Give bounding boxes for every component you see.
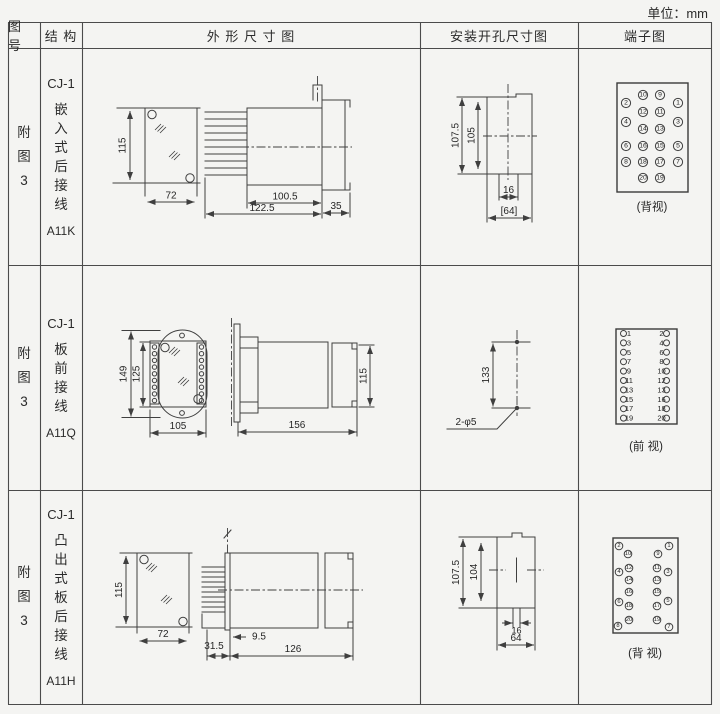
row1-mounting-drawing: 107.5 105 16 [64] xyxy=(451,84,538,222)
terminal-pin-number: 14 xyxy=(626,577,633,583)
screw-terminal-circle xyxy=(152,365,156,369)
terminal-pin-number: 8 xyxy=(616,623,619,629)
screw-terminal-circle xyxy=(152,385,156,389)
figure-no-row3: 附图3 xyxy=(8,490,40,704)
table-grid xyxy=(8,23,712,705)
screw-terminal-circle xyxy=(152,372,156,376)
col-header-outline: 外 形 尺 寸 图 xyxy=(82,22,420,48)
terminal-pin-number: 2 xyxy=(617,543,620,549)
terminal-pin-number: 11 xyxy=(625,376,633,385)
terminal-pin-number: 17 xyxy=(625,404,633,413)
structure-row3: CJ-1 凸出式板后接线 A11H xyxy=(40,490,82,704)
terminal-pin-number: 1 xyxy=(667,543,670,549)
terminal-pin-number: 14 xyxy=(639,126,647,133)
terminal-pin-number: 15 xyxy=(625,395,633,404)
dim-label: 115 xyxy=(118,137,129,153)
screw-terminal-circle xyxy=(152,398,156,402)
row1-terminal-diagram: (背视) 1092112114314136161558181772019 xyxy=(617,83,688,214)
terminal-pin-number: 10 xyxy=(657,367,665,376)
terminal-pin-number: 5 xyxy=(676,143,680,150)
unit-label: 单位：mm xyxy=(588,3,708,22)
terminal-pin-number: 19 xyxy=(656,175,664,182)
terminal-view-label: (背 视) xyxy=(628,646,662,660)
screw-terminal-circle xyxy=(152,378,156,382)
terminal-pin-number: 2 xyxy=(624,100,628,107)
terminal-pin-number: 20 xyxy=(626,617,632,623)
terminal-pin-number: 11 xyxy=(654,565,660,571)
terminal-pin-number: 13 xyxy=(656,126,664,133)
terminal-pin-number: 16 xyxy=(657,395,665,404)
row1-outline-drawing: 115 72 100.5 122.5 35 xyxy=(113,76,352,218)
terminal-pin-number: 19 xyxy=(654,617,660,623)
screw-terminal-circle xyxy=(152,358,156,362)
dim-label: 105 xyxy=(170,421,187,432)
terminal-view-label: (背视) xyxy=(637,200,668,214)
dim-label: 115 xyxy=(359,368,370,384)
dim-label: [64] xyxy=(501,206,518,217)
terminal-pin-number: 16 xyxy=(639,143,647,150)
terminal-pin-circle xyxy=(664,340,670,346)
terminal-pin-number: 17 xyxy=(656,159,664,166)
terminal-pin-circle xyxy=(664,359,670,365)
row2-mounting-drawing: 133 2-φ5 xyxy=(447,330,530,429)
row3-terminal-diagram: (背 视) 2110912114314131615651817201987 xyxy=(613,538,678,660)
terminal-pin-number: 11 xyxy=(656,109,663,116)
terminal-pin-number: 12 xyxy=(657,376,665,385)
terminal-pin-number: 9 xyxy=(658,92,662,99)
terminal-pin-number: 3 xyxy=(666,569,669,575)
terminal-pin-number: 6 xyxy=(624,143,628,150)
terminal-pin-number: 3 xyxy=(676,119,680,126)
dim-label: 156 xyxy=(289,420,306,431)
terminal-pin-number: 18 xyxy=(639,159,647,166)
terminal-pin-number: 16 xyxy=(626,589,632,595)
screw-terminal-circle xyxy=(199,378,203,382)
structure-label: 凸出式板后接线 xyxy=(53,531,70,664)
model-label: CJ-1 xyxy=(47,76,74,91)
terminal-pin-number: 12 xyxy=(639,109,647,116)
terminal-pin-number: 13 xyxy=(654,577,660,583)
terminal-pin-number: 12 xyxy=(626,565,632,571)
terminal-pin-number: 5 xyxy=(627,348,631,357)
terminal-pin-circle xyxy=(621,340,627,346)
terminal-pin-number: 9 xyxy=(656,551,659,557)
terminal-pin-number: 18 xyxy=(657,404,665,413)
screw-terminal-circle xyxy=(199,352,203,356)
terminal-pin-number: 7 xyxy=(627,357,631,366)
terminal-pin-number: 19 xyxy=(625,414,633,423)
structure-label: 嵌入式后接线 xyxy=(53,100,70,214)
col-header-terminal: 端子图 xyxy=(578,22,712,48)
terminal-pin-number: 15 xyxy=(654,589,660,595)
terminal-pin-circle xyxy=(621,331,627,337)
screw-terminal-circle xyxy=(152,345,156,349)
dim-label: 100.5 xyxy=(272,192,297,203)
dim-label: 107.5 xyxy=(451,560,462,585)
structure-row1: CJ-1 嵌入式后接线 A11K xyxy=(40,48,82,265)
terminal-pin-circle xyxy=(664,331,670,337)
terminal-pin-number: 20 xyxy=(639,175,647,182)
dim-label: 104 xyxy=(469,563,480,580)
screw-terminal-circle xyxy=(199,372,203,376)
row2-outline-drawing: 149 125 105 115 156 xyxy=(119,318,375,437)
dim-label: 126 xyxy=(285,644,302,655)
row3-mounting-drawing: 107.5 104 16 64 xyxy=(451,533,544,650)
terminal-pin-number: 10 xyxy=(625,551,631,557)
dim-label: 133 xyxy=(481,366,492,383)
terminal-pin-number: 7 xyxy=(676,159,680,166)
dim-label: 72 xyxy=(165,191,177,202)
terminal-pin-number: 8 xyxy=(624,159,628,166)
terminal-view-label: (前 视) xyxy=(629,439,663,453)
hole-note-label: 2-φ5 xyxy=(456,417,477,428)
dim-label: 149 xyxy=(119,365,130,382)
dim-label: 9.5 xyxy=(252,632,266,643)
col-header-mounting: 安装开孔尺寸图 xyxy=(420,22,578,48)
terminal-pin-circle xyxy=(664,349,670,355)
dim-label: 122.5 xyxy=(249,203,274,214)
structure-label: 板前接线 xyxy=(53,340,70,416)
terminal-pin-number: 5 xyxy=(666,598,669,604)
dim-label: 72 xyxy=(157,629,169,640)
terminal-pin-number: 6 xyxy=(617,599,620,605)
dim-label: 105 xyxy=(467,127,478,144)
screw-terminal-circle xyxy=(199,358,203,362)
terminal-pin-number: 1 xyxy=(676,100,680,107)
row3-outline-drawing: 115 72 9.5 31.5 126 xyxy=(114,528,363,660)
screw-terminal-circle xyxy=(152,352,156,356)
model-label: CJ-1 xyxy=(47,507,74,522)
terminal-pin-number: 8 xyxy=(659,357,663,366)
terminal-pin-circle xyxy=(621,349,627,355)
dim-label: 115 xyxy=(114,582,125,598)
screw-terminal-circle xyxy=(199,385,203,389)
col-header-structure: 结 构 xyxy=(40,22,82,48)
screw-terminal-circle xyxy=(199,392,203,396)
terminal-pin-number: 1 xyxy=(627,329,631,338)
terminal-pin-number: 4 xyxy=(624,119,628,126)
terminal-pin-number: 13 xyxy=(625,385,633,394)
figure-no-row1: 附图3 xyxy=(8,48,40,265)
terminal-pin-number: 7 xyxy=(667,624,670,630)
terminal-pin-number: 9 xyxy=(627,367,631,376)
dim-label: 64 xyxy=(510,633,522,644)
screw-terminal-circle xyxy=(199,365,203,369)
terminal-pin-number: 6 xyxy=(659,348,663,357)
technical-drawings: 115 72 100.5 122.5 35 xyxy=(0,0,720,714)
terminal-pin-circle xyxy=(621,359,627,365)
terminal-pin-number: 10 xyxy=(639,92,647,99)
terminal-pin-number: 20 xyxy=(657,414,665,423)
terminal-pin-number: 3 xyxy=(627,338,631,347)
terminal-pin-number: 2 xyxy=(659,329,663,338)
code-label: A11K xyxy=(47,224,75,238)
terminal-pin-number: 4 xyxy=(659,338,663,347)
terminal-pin-number: 4 xyxy=(617,569,621,575)
manual-page: 单位：mm 图 号 结 构 外 形 尺 寸 图 安装开孔尺寸图 端子图 附图3 … xyxy=(0,0,720,714)
terminal-pin-number: 13 xyxy=(657,385,665,394)
figure-no-row2: 附图3 xyxy=(8,265,40,490)
dim-label: 35 xyxy=(330,201,342,212)
dim-label: 107.5 xyxy=(451,123,462,148)
col-header-figure-no: 图 号 xyxy=(8,22,40,48)
screw-terminal-circle xyxy=(199,345,203,349)
terminal-pin-number: 15 xyxy=(656,143,664,150)
code-label: A11H xyxy=(46,674,75,688)
structure-row2: CJ-1 板前接线 A11Q xyxy=(40,265,82,490)
terminal-pin-number: 17 xyxy=(654,603,660,609)
row2-terminal-diagram: (前 视) 1234567891011121313151617181920 xyxy=(616,329,677,453)
screw-terminal-circle xyxy=(152,392,156,396)
dim-label: 16 xyxy=(503,185,515,196)
model-label: CJ-1 xyxy=(47,316,74,331)
dim-label: 125 xyxy=(132,365,143,382)
terminal-pin-circle xyxy=(621,368,627,374)
code-label: A11Q xyxy=(46,426,76,440)
terminal-pin-number: 18 xyxy=(626,603,632,609)
